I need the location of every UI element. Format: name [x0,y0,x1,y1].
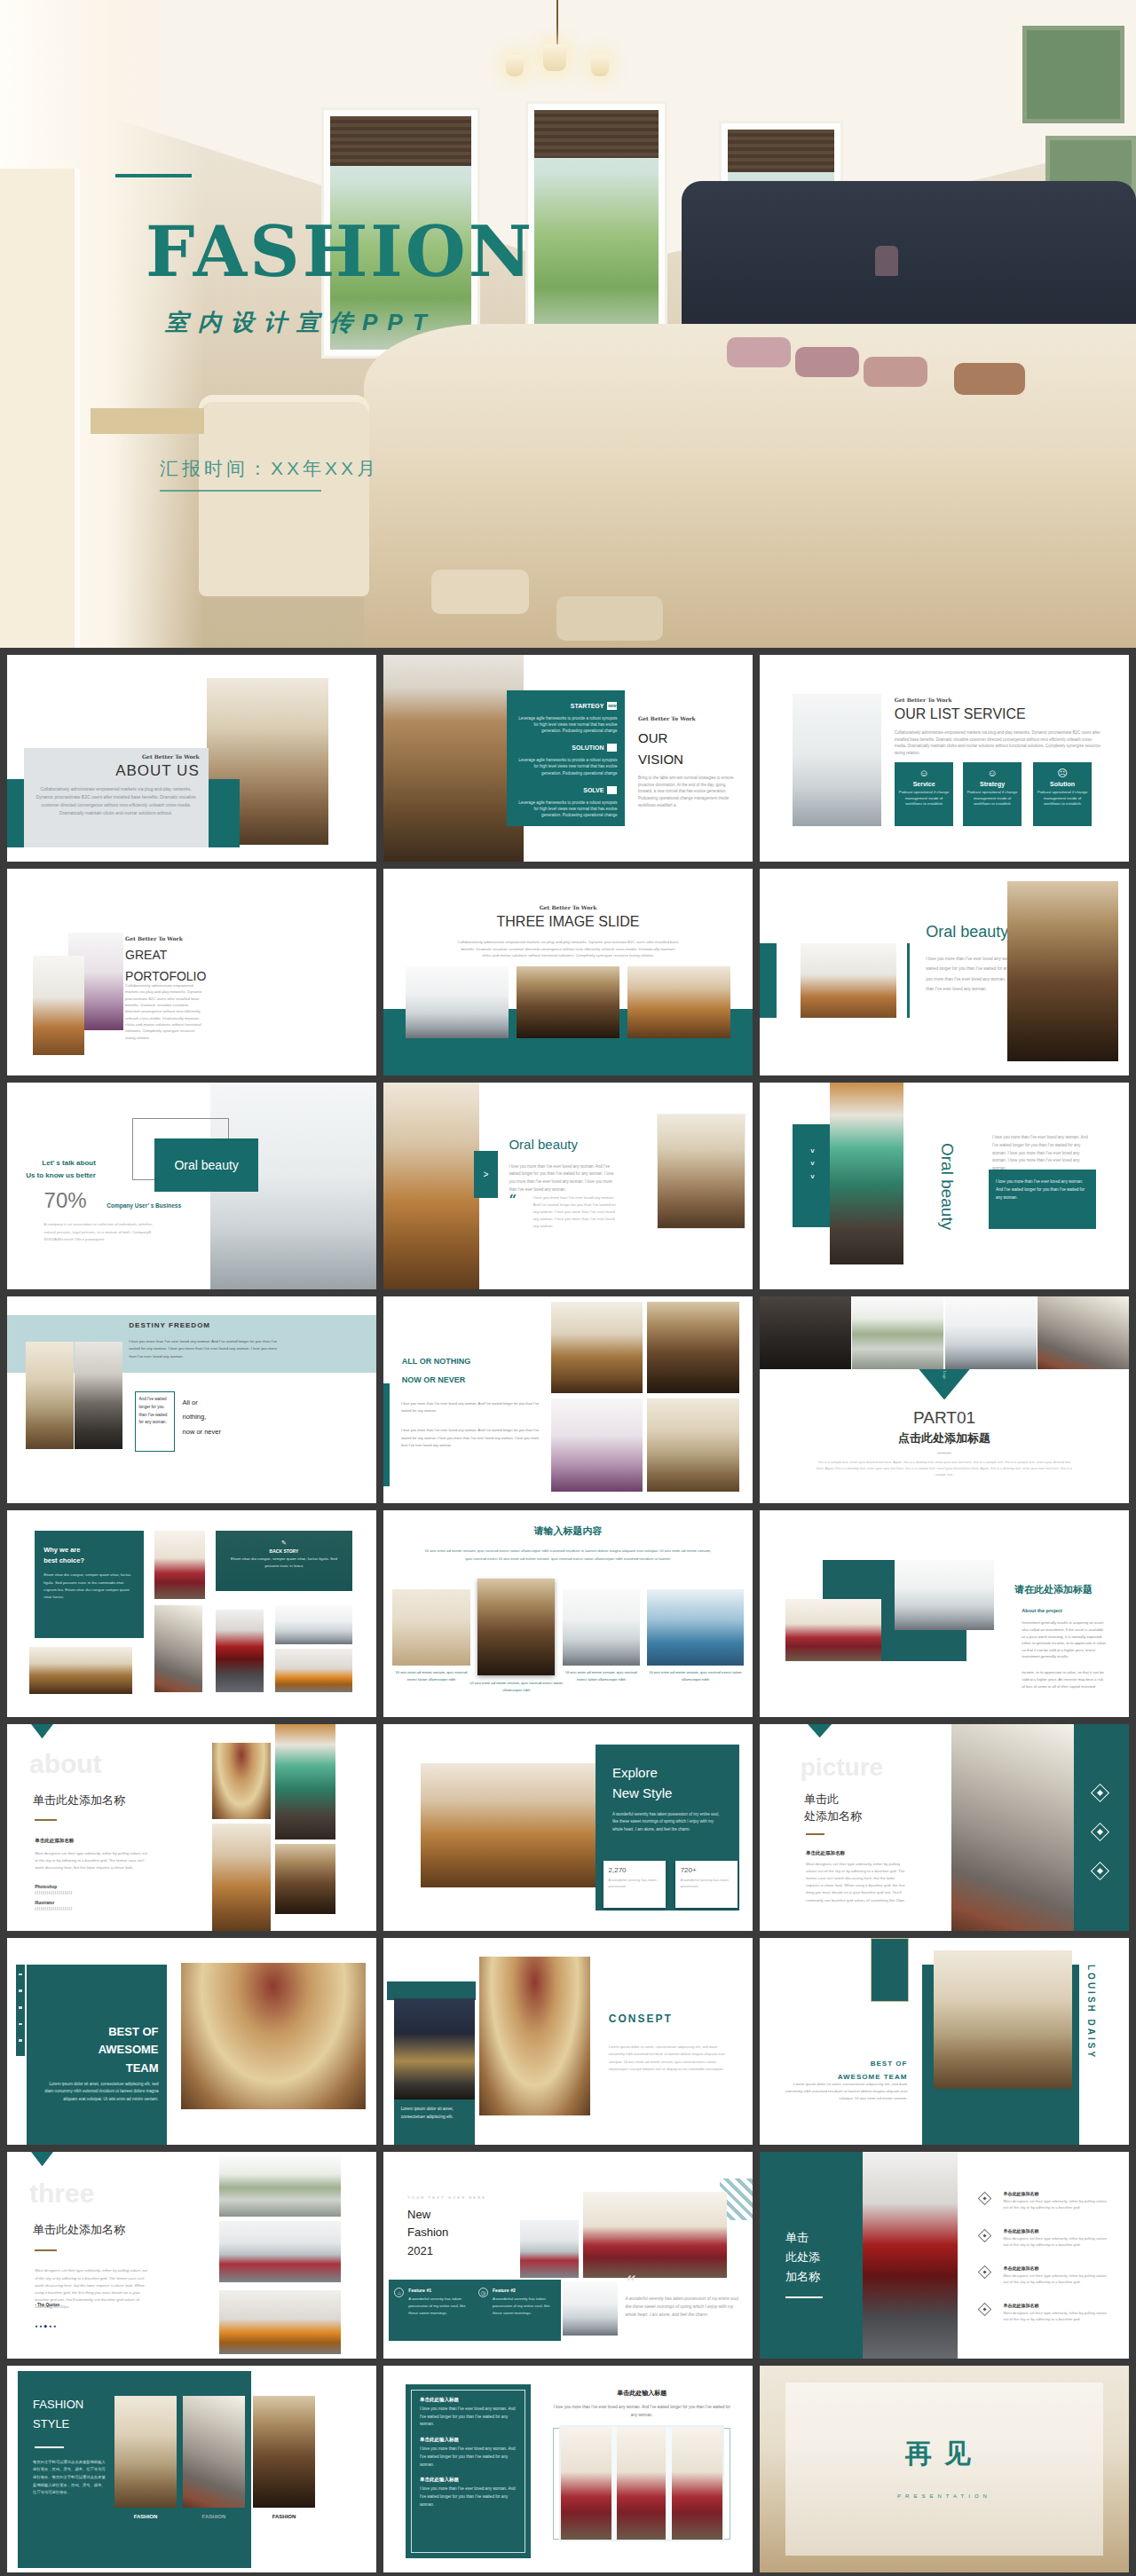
divider [937,1453,952,1453]
goodbye-title: 再见 [760,2436,1129,2472]
slide-title: CONSEPT [609,2013,673,2025]
body-text: Collaboratively administrate empowered m… [33,785,200,817]
diamond-icon [977,2303,991,2317]
photo-orange-office [219,2290,341,2354]
teal-triangle [31,1724,53,1738]
subtitle: 单击此处添加名称 [806,1850,845,1856]
slide-input-title[interactable]: 单击此处输入标题 I love you more than I've ever … [383,2366,753,2572]
hero-cover: FASHION 室内设计宣传PPT 汇报时间：XX年XX月 [0,0,1136,648]
tick-mark [19,2023,22,2026]
list-item: 单击此处添加名称 Most designers set their type a… [1004,2191,1111,2210]
quote-text: A wonderful serenity has taken possessio… [625,2295,739,2319]
body-text: Lorem ipsum dolor sit amet, consectetuer… [785,2081,907,2103]
panel-divider [611,2427,617,2540]
feature-name: Feature #2 [493,2288,556,2293]
photo-kitchen-bar [383,1083,479,1289]
accent-line [115,174,192,177]
card-title: Solution [1033,781,1093,787]
wall-art [1022,26,1124,123]
skill-bar: /////////////////// [35,1891,73,1895]
kicker: Get Better To Work [638,715,696,721]
slide-title: GREAT PORTOFOLIO [125,945,206,988]
watermark: picture [801,1753,883,1782]
slide-about-name[interactable]: about 单击此处添加名称 单击此处添加名称 Most designers s… [7,1724,376,1931]
list-icon [607,786,617,794]
doorway [0,169,80,648]
body-text: income, or to appreciate in value, so th… [1022,1669,1107,1690]
pagination-dots[interactable]: ●●◆●● [35,2323,58,2328]
pillow [727,337,791,367]
accent-underline [160,490,321,492]
photo-red-sofa-living [583,2192,727,2278]
body-text: I love you more than I've ever loved any… [401,1427,541,1450]
section-body: I love you more than I've ever loved any… [420,2485,517,2509]
photo-living [647,1302,738,1394]
skill-name: Illustrator [35,1901,54,1905]
subtitle: 单击此处添加名称 [35,1838,74,1844]
item-body: Most designers set their type arbitraril… [1004,2310,1111,2322]
slide-louish-daisy[interactable]: LOUISH DAISY BEST OF AWESOME TEAM Lorem … [760,1938,1129,2145]
item-title: 单击此处添加名称 [1004,2191,1111,2196]
card-title: Service [895,781,954,787]
chandelier-chain [556,0,558,46]
features-box: ⌂ Feature #1 A wonderful serenity has ta… [389,2280,560,2341]
bedside-lamp [875,246,898,276]
teal-box: 单击此处输入标题 I love you more than I've ever … [406,2384,531,2558]
section-body: I love you more than I've ever loved any… [420,2406,517,2429]
item-label: SOLVE [583,787,603,793]
photo-kitchen-bar [212,1824,272,1931]
teal-text-box: I love you more than I've ever loved any… [989,1170,1096,1230]
item-title: 单击此处添加名称 [1004,2303,1111,2308]
item-body: Leverage agile frameworks to provide a r… [515,800,617,819]
strategy-card: ☺ Strategy Podcast operational if change… [963,762,1022,826]
tick-mark [19,1989,22,1992]
slide-picture-name[interactable]: picture 单击此 处添加名称 单击此处添加名称 Most designer… [760,1724,1129,1931]
skill-name: Photoshop [35,1885,57,1889]
chevrons-icon: >>> [804,1145,819,1183]
backstory-title: BACK STORY [216,1548,352,1554]
card-title: Why we are best choice? [43,1545,135,1566]
kicker: Get Better To Work [33,753,200,760]
feature: ⌂ Feature #1 A wonderful serenity has ta… [394,2288,471,2333]
slide-three-name[interactable]: three 单击此处添加名称 Most designers set their … [7,2152,376,2359]
slide-all-or-nothing[interactable]: ALL OR NOTHING NOW OR NEVER I love you m… [383,1296,753,1503]
photo-classic-room [26,1342,74,1449]
card-body: Podcast operational if change management… [1033,790,1093,807]
body-text: 每页的文字都可以通过点击来重新编辑输入进行更改，页码、序号、颜色、位置等均可进行… [33,2459,106,2497]
square-icon [607,744,617,752]
white-rule [785,2296,823,2298]
slide-title: OUR LIST SERVICE [895,706,1026,722]
slide-goodbye[interactable]: 再见 PRESENTATION [760,2366,1129,2572]
body-text: A company is an association or collectio… [44,1221,159,1244]
list-item: 单击此处添加名称 Most designers set their type a… [1004,2228,1111,2248]
photo-vanity [563,2282,618,2336]
slide-our-vision[interactable]: STARTEGYNEW Leverage agile frameworks to… [383,655,753,862]
slide-oral-beauty-1[interactable]: Oral beauty I love you more than I've ev… [760,869,1129,1075]
item-label: STARTEGY [571,703,604,709]
slide-title: THREE IMAGE SLIDE [383,914,753,930]
hero-title: FASHION [146,211,534,292]
pillow [954,363,1025,395]
right-body: I love you more than I've ever loved any… [553,2403,730,2419]
item-body: Most designers set their type arbitraril… [1004,2273,1111,2285]
photo-white-room [563,1589,640,1666]
photo-bedroom [219,2221,341,2282]
chandelier-lamp [591,55,609,76]
part-title: 点击此处添加标题 [760,1430,1129,1446]
photo-kitchen [33,956,84,1055]
photo-blue-bath [647,1589,743,1666]
slide-title: 单击 此处添 加名称 [785,2228,820,2287]
photo-dining-dark [29,1647,132,1695]
teal-caption-box: Lorem ipsum dolor sit amet, consectetuer… [394,2099,476,2145]
new-badge: NEW [607,702,617,710]
slide-title: OUR VISION [638,728,683,770]
slide-best-of-awesome-team[interactable]: BEST OF AWESOME TEAM Lorem ipsum dolor s… [7,1938,376,2145]
hero-subtitle: 室内设计宣传PPT [165,307,437,338]
pillow [864,357,927,387]
photo-showroom-3 [253,2396,316,2508]
teal-small-rect [871,1938,910,2002]
photo-dining [551,1302,643,1394]
photo-office [219,2156,341,2218]
smiley-icon: ☺ [895,768,954,779]
photo-white-bedroom [945,1296,1037,1369]
photo-frame [553,2428,730,2540]
subtitle: About the project [1022,1608,1062,1613]
slide-title: Oral beauty [926,923,1008,941]
slide-best-choice[interactable]: Why we are best choice? Etiam vitae dui … [7,1510,376,1717]
slide-consept[interactable]: Lorem ipsum dolor sit amet, consectetuer… [383,1938,753,2145]
body-text: I love you more than I've ever loved any… [129,1338,284,1361]
section-body: I love you more than I've ever loved any… [420,2446,517,2469]
slide-title: Explore New Style [612,1763,673,1803]
slide-explore-new-style[interactable]: Explore New Style A wonderful serenity h… [383,1724,753,1931]
photo-kitchen-orange [275,1649,352,1692]
slide-grid: Get Better To Work ABOUT US Collaborativ… [0,648,1136,2576]
photo-purple-bath [551,1398,643,1492]
skill-bar: /////////////////// [35,1907,73,1911]
kicker: Get Better To Work [383,904,753,910]
slide-oral-beauty-2[interactable]: > Oral beauty I love you more than I've … [383,1083,753,1289]
photo-red-glass-wall [863,2152,957,2359]
title-line-1: ALL OR NOTHING [402,1357,470,1366]
photo-bedroom-warm [517,966,619,1039]
slide-about-us[interactable]: Get Better To Work ABOUT US Collaborativ… [7,655,376,862]
body-text: Most designers set their type arbitraril… [806,1861,905,1904]
photo-classic-living [477,1579,555,1676]
tick-mark [19,2006,22,2009]
item-title: 单击此处添加名称 [1004,2228,1111,2233]
percent-value: 70% [44,1188,87,1213]
photo-patio [275,1724,336,1839]
photo-loft [1037,1296,1129,1369]
stat-card: 2,270 A wonderful serenity has taken pos… [603,1861,667,1909]
lead-heading: Let’ s talk about Us to know us better [14,1157,96,1183]
body-text: Ut wisi enim ad minim veniam, quis nostr… [424,1548,712,1563]
slide-title: BEST OF AWESOME TEAM [797,2058,908,2084]
kicker: Get Better To Work [125,935,183,941]
slide-title: 请输入标题内容 [383,1524,753,1538]
photo-lounge [657,1114,745,1229]
smiley-icon: ☺ [963,768,1022,779]
slide-title: New Fashion 2021 [407,2206,448,2261]
photo-triptych [559,2425,724,2541]
item-body: Leverage agile frameworks to provide a r… [515,715,617,735]
slide-title: 单击此处添加名称 [33,2222,125,2238]
item-body: Most designers set their type arbitraril… [1004,2198,1111,2210]
section-title: 单击此处输入标题 [420,2477,517,2483]
photo-patio [830,1083,903,1264]
white-rule [35,2446,64,2448]
slide-title: 请在此处添加标题 [1014,1583,1093,1596]
part-number: PART01 [760,1408,1129,1428]
accent-rule [35,2249,57,2251]
photo-art-sofa [154,1531,204,1599]
slide-add-title-here[interactable]: 请在此处添加标题 About the project Investment ge… [760,1510,1129,1717]
stat-value: 2,270 [609,1866,661,1874]
body-text: Lorem ipsum dolor sit amet, consectetuer… [40,2081,158,2104]
photo-loft-tall [154,1605,202,1692]
about-panel: Get Better To Work ABOUT US Collaborativ… [24,748,209,847]
feature-name: Feature #1 [408,2288,471,2293]
slide-fashion-style[interactable]: FASHION STYLE 每页的文字都可以通过点击来重新编辑输入进行更改，页码… [7,2366,376,2572]
photo-dark-hallway [394,1998,476,2099]
teal-bar [760,943,777,1018]
feature-body: A wonderful serenity has taken possessio… [493,2296,556,2317]
photo-loft-stairs [951,1724,1073,1931]
slide-oral-beauty-vertical[interactable]: >>> Oral beauty I love you more than I'v… [760,1083,1129,1289]
slide-three-image[interactable]: Get Better To Work THREE IMAGE SLIDE Col… [383,869,753,1075]
photo-grand-staircase [181,1963,366,2109]
body-text: A wonderful serenity has taken possessio… [612,1811,723,1834]
body-text: Collaboratively administrate empowered m… [895,729,1101,757]
photo-bathroom [406,966,509,1039]
slide-title: DESTINY FREEDOM [129,1321,210,1329]
photo-caption: FASHION [114,2514,177,2519]
slide-title-content[interactable]: 请输入标题内容 Ut wisi enim ad minim veniam, qu… [383,1510,753,1717]
photo-caption: Ut wisi enim ad minim veniam, quis nostr… [392,1669,469,1682]
bench-cushion [556,596,663,641]
diamond-icon [977,2265,991,2280]
backstory-overlay: ✎ BACK STORY Etiam vitae dui congue, sem… [216,1531,352,1591]
photo-dark-bedroom [760,1296,851,1369]
photo-red-accent [216,1610,264,1692]
sad-icon: ☹ [1033,768,1093,779]
side-slogan: All or nothing, now or never [183,1396,231,1440]
tick-mark [19,1973,22,1976]
teal-triangle [31,2152,53,2166]
photo-caption: Ut wisi enim ad minim veniam, quis nostr… [563,1669,640,1682]
chandelier [543,44,566,71]
photo-showroom-1 [114,2396,177,2508]
right-title: 单击此处输入标题 [549,2389,734,2398]
photo-caption: Ut wisi enim ad minim veniam, quis nostr… [647,1669,743,1682]
bench-cushion [431,570,529,614]
watermark: three [29,2178,94,2209]
goodbye-subtitle: PRESENTATION [760,2493,1129,2499]
pencil-icon: ✎ [216,1540,352,1547]
kicker: YOUR TEXT GOES HERE [407,2195,486,2200]
item-body: Most designers set their type arbitraril… [1004,2235,1111,2248]
photo-stone-fireplace [383,655,524,862]
card-body: Podcast operational if change management… [895,790,954,807]
slide-part01[interactable]: Logo PART01 点击此处添加标题 this is a sample te… [760,1296,1129,1503]
quote-text: I love you more than I've ever loved any… [532,1194,618,1231]
teal-triangle [808,1724,832,1737]
slide-seventy-percent[interactable]: Let’ s talk about Us to know us better 7… [7,1083,376,1289]
body-text: I love you more than I've ever loved any… [509,1163,616,1193]
photo-restaurant [275,1844,336,1914]
section: 单击此处输入标题 I love you more than I've ever … [420,2437,517,2469]
photo-bathroom-beige [392,1589,469,1666]
photo-caption: FASHION [253,2514,316,2519]
teal-line [907,943,910,1018]
chandelier-lamp [506,55,524,76]
photo-showroom-2 [183,2396,246,2508]
section: 单击此处输入标题 I love you more than I've ever … [420,2397,517,2429]
arrow-button[interactable]: > [474,1151,498,1199]
slide-title: BEST OF AWESOME TEAM [40,2023,158,2078]
slide-title: Oral beauty [509,1137,578,1152]
window [528,104,665,343]
accent-rule [806,1833,824,1835]
slide-add-name-teal[interactable]: 单击 此处添 加名称 单击此处添加名称 Most designers set t… [760,2152,1129,2359]
strategy-panel: STARTEGYNEW Leverage agile frameworks to… [507,690,625,827]
diamond-icon [977,2191,991,2205]
solution-card: ☹ Solution Podcast operational if change… [1033,762,1093,826]
photo-vaulted-living [934,1950,1072,2089]
slide-title: ABOUT US [33,762,200,780]
card-body: Podcast operational if change management… [963,790,1022,807]
quote-icon: “ [509,1192,517,1208]
item-title: 单击此处添加名称 [1004,2265,1111,2271]
photo-white-bedroom [895,1560,994,1630]
pillow [795,347,859,377]
stat-label: A wonderful serenity has taken possessio… [681,1878,733,1890]
photo-kitchen [627,966,730,1039]
stat-label: A wonderful serenity has taken possessio… [609,1878,661,1890]
diamond-icon [977,2228,991,2242]
body-text: Investment generally results in acquirin… [1022,1619,1107,1659]
body-text: I love you more than I've ever loved any… [401,1400,541,1416]
outlined-quote: And I've waited longer for you than I've… [135,1391,176,1452]
photo-staircase [212,1743,272,1819]
section: 单击此处输入标题 I love you more than I've ever … [420,2477,517,2509]
home-icon: ⌂ [394,2288,404,2297]
slide-title: 单击此处添加名称 [33,1792,125,1808]
photo-caption: FASHION [183,2514,246,2519]
photo-office [852,1296,943,1369]
side-table [91,408,204,434]
stat-value: 720+ [681,1866,733,1874]
vertical-brand: LOUISH DAISY [1086,1965,1096,2060]
photo-red-sofa [785,1599,881,1661]
center-caption-body: Ut wisi enim ad minim veniam, quis nostr… [469,1680,564,1693]
body-text: Bring to the table win-win survival stra… [638,775,734,808]
panel-divider [666,2427,671,2540]
feature: ◷ Feature #2 A wonderful serenity has ta… [478,2288,556,2333]
backstory-body: Etiam vitae dui congue, semper quam vita… [216,1556,352,1570]
accent-rule [35,1819,57,1821]
photo-kitchen-small [801,943,896,1018]
body-text: this is a sample text. insert your desir… [815,1460,1073,1477]
item-body: Leverage agile frameworks to provide a r… [515,757,617,776]
body-text: Collaboratively administrate empowered m… [457,939,679,958]
card-body: Etiam vitae dui congue, semper quam vita… [43,1572,135,1601]
teal-strip [16,1965,25,2056]
list-item: 单击此处添加名称 Most designers set their type a… [1004,2265,1111,2285]
photo-white-sofa [793,694,881,826]
photo-luxury-lounge [1007,881,1118,1061]
slide-destiny-freedom[interactable]: DESTINY FREEDOM I love you more than I'v… [7,1296,376,1503]
hero-report-time: 汇报时间：XX年XX月 [160,456,379,481]
teal-card: Why we are best choice? Etiam vitae dui … [35,1531,144,1638]
card-title: Strategy [963,781,1022,787]
photo-grand-staircase [479,1957,590,2115]
section-title: 单击此处输入标题 [420,2397,517,2403]
quote-credit: - The Quotes [35,2303,59,2307]
slide-our-list-service[interactable]: Get Better To Work OUR LIST SERVICE Coll… [760,655,1129,862]
slide-title: FASHION STYLE [33,2395,83,2434]
body-text: I love you more than I've ever loved any… [992,1134,1092,1173]
watch-icon: ◷ [478,2288,488,2297]
body-text: Most designers set their type arbitraril… [35,1850,149,1871]
photo-sitting-room [647,1398,738,1492]
item-label: SOLUTION [572,744,603,751]
overlay-title: Oral beauty [154,1138,257,1193]
slide-title: 单击此 处添加名称 [804,1791,862,1825]
service-card: ☺ Service Podcast operational if change … [895,762,954,826]
photo-white-loft [275,1605,352,1644]
kicker: Get Better To Work [895,697,952,703]
list-item: 单击此处添加名称 Most designers set their type a… [1004,2303,1111,2322]
watermark: about [29,1749,102,1779]
tick-mark [19,2039,22,2042]
stat-card: 720+ A wonderful serenity has taken poss… [675,1861,738,1909]
photo-bedroom-curtains [520,2220,580,2278]
title-line-2: NOW OR NEVER [402,1375,466,1384]
quote-icon: “ [625,2272,635,2296]
photo-kitchen-island [421,1763,598,1887]
feature-body: A wonderful serenity has taken possessio… [408,2296,471,2317]
body-text: Lorem ipsum dolor sit amet, consectetuer… [609,2044,730,2074]
armchair [199,395,369,595]
photo-lamp-room [75,1342,122,1449]
slide-title-vertical: Oral beauty [937,1143,957,1230]
teal-edge-bar [383,1383,390,1487]
slide-great-portofolio[interactable]: Get Better To Work GREAT PORTOFOLIO Coll… [7,869,376,1075]
logo-text: Logo [943,1371,947,1379]
section-title: 单击此处输入标题 [420,2437,517,2443]
body-text: Collaboratively administrate empowered m… [125,982,202,1041]
slide-new-fashion-2021[interactable]: YOUR TEXT GOES HERE New Fashion 2021 ⌂ F… [383,2152,753,2359]
percent-label: Company User’ s Business [106,1202,181,1209]
